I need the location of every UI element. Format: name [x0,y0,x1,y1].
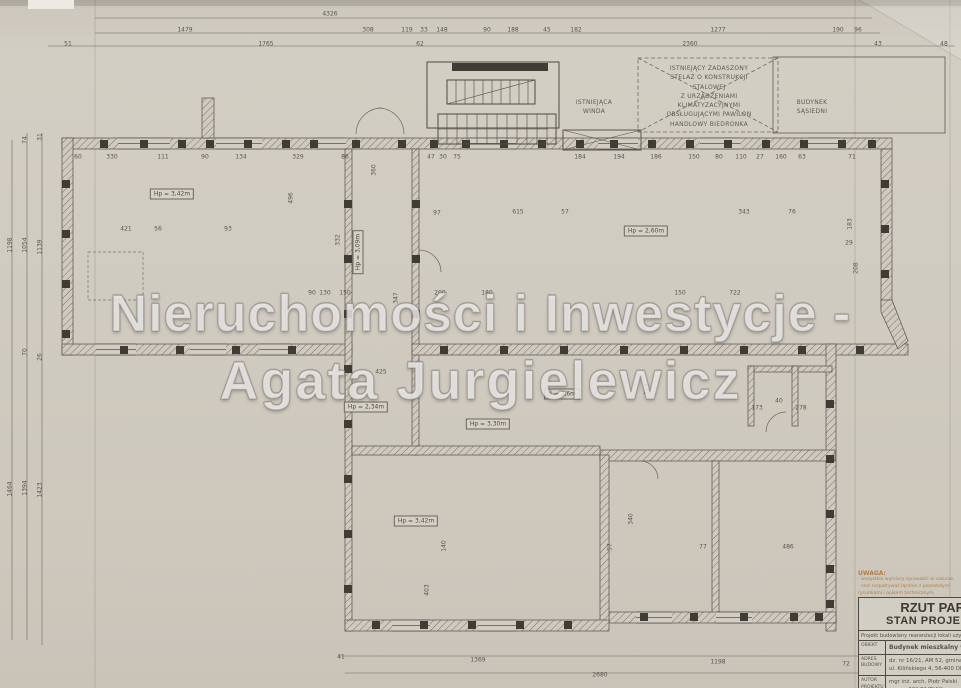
canopy-note: ISTNIEJĄCY ZADASZONY STELAŻ O KONSTRUKCJ… [638,64,780,129]
dimension-text: 1198 [7,237,14,252]
dimension-text: 76 [788,209,796,216]
dimension-text: 74 [22,136,29,144]
uwaga-body: - wszystkie wymiary sprawdzić w naturze,… [858,577,958,598]
dimension-text: 110 [735,154,746,161]
dimension-text: 111 [157,154,168,161]
title-block-row-value: dz. nr 16/21, AM 52, gmina ul. Kilińskie… [886,655,961,675]
room-height-label: Hp = 3,09m [353,230,364,274]
dimension-text: 51 [64,41,72,48]
watermark-line1: Nieruchomości i Inwestycje - [0,284,961,344]
dimension-text: 329 [292,154,303,161]
dimension-text: 2680 [592,672,607,679]
dimension-text: 75 [453,154,461,161]
dimension-text: 148 [436,27,447,34]
title-block-row: AUTOR PROJEKTUmgr inż. arch. Piotr Palsk… [859,676,961,688]
dimension-text: 184 [574,154,585,161]
dimension-text: 308 [362,27,373,34]
scanned-floor-plan-page: 4326147930811933148901884518212771909651… [0,0,961,688]
dimension-text: 90 [201,154,209,161]
external-staircase [427,62,559,144]
dimension-text: 134 [235,154,246,161]
drawing-title: RZUT PARTE [865,600,961,615]
dimension-text: 421 [120,226,131,233]
title-block-row-value: Budynek mieszkalny wielo [886,641,961,654]
dimension-text: 1464 [7,481,14,496]
neighbor-building-outline [773,57,945,133]
dimension-text: 615 [512,209,523,216]
dimension-text: 1479 [177,27,192,34]
dimension-text: 188 [507,27,518,34]
title-block-row-value: mgr inż. arch. Piotr Palski upr. nr 301/… [886,676,961,688]
dimension-text: 486 [782,544,793,551]
dimension-text: 96 [854,27,862,34]
dimension-text: 60 [74,154,82,161]
dimension-text: 48 [940,41,948,48]
dimension-text: 80 [715,154,723,161]
dimension-text: 90 [483,27,491,34]
dimension-text: 330 [106,154,117,161]
dimension-text: 150 [688,154,699,161]
dimension-text: 183 [847,218,854,229]
dimension-text: 1765 [258,41,273,48]
dimension-text: 86 [341,154,349,161]
dimension-text: 62 [416,41,424,48]
dimension-text: 33 [420,27,428,34]
title-block-rows: OBIEKTBudynek mieszkalny wieloADRES BUDO… [859,641,961,688]
dimension-text: 360 [371,164,378,175]
dimension-text: 45 [543,27,551,34]
dimension-text: 119 [401,27,412,34]
dimension-text: 72 [842,661,850,668]
dimension-text: 43 [874,41,882,48]
uwaga-note: UWAGA: - wszystkie wymiary sprawdzić w n… [858,570,958,598]
dimension-text: 57 [561,209,569,216]
title-block-row: OBIEKTBudynek mieszkalny wielo [859,641,961,655]
dimension-text: 186 [650,154,661,161]
dimension-text: 56 [154,226,162,233]
top-left-structure [202,98,214,138]
dimension-text: 160 [775,154,786,161]
dimension-text: 194 [613,154,624,161]
dimension-text: 1394 [22,480,29,495]
dimension-text: 57 [607,543,614,551]
title-block-row: ADRES BUDOWYdz. nr 16/21, AM 52, gmina u… [859,655,961,676]
dimension-text: 2360 [682,41,697,48]
dimension-text: 71 [848,154,856,161]
watermark: Nieruchomości i Inwestycje - Agata Jurgi… [0,284,961,412]
dimension-text: 93 [224,226,232,233]
dimension-text: 140 [441,540,448,551]
dimension-text: 496 [288,192,295,203]
dimension-text: 1369 [470,657,485,664]
title-block: RZUT PARTE STAN PROJEKTOW Projekt budowl… [858,597,961,688]
dimension-text: 340 [628,513,635,524]
title-block-row-label: ADRES BUDOWY [859,655,886,675]
project-description: Projekt budowlany rearanżacji lokali uży… [859,631,961,641]
title-block-row-label: OBIEKT [859,641,886,654]
dimension-text: 4326 [322,11,337,18]
drawing-state: STAN PROJEKTOW [865,615,961,627]
dimension-text: 332 [335,234,342,245]
dimension-text: 27 [756,154,764,161]
dimension-text: 47 [427,154,435,161]
dimension-text: 182 [570,27,581,34]
dimension-text: 29 [845,240,853,247]
dimension-text: 1277 [710,27,725,34]
dimension-text: 97 [433,210,441,217]
dimension-text: 77 [699,544,707,551]
dimension-text: 343 [738,209,749,216]
uwaga-heading: UWAGA: [858,570,958,577]
dimension-text: 208 [853,262,860,273]
dimension-text: 190 [832,27,843,34]
dimension-text: 403 [424,584,431,595]
dimension-text: 63 [798,154,806,161]
dimension-text: 1423 [37,482,44,497]
dimension-text: 41 [337,654,345,661]
title-block-header: RZUT PARTE STAN PROJEKTOW [859,598,961,631]
room-height-label: Hp = 2,60m [624,226,668,237]
neighbor-building-label: BUDYNEK SĄSIEDNI [762,98,862,117]
dimension-text: 30 [439,154,447,161]
dimension-text: 1139 [37,239,44,254]
dimension-text: 1054 [22,237,29,252]
room-height-label: Hp = 3,30m [466,419,510,430]
title-block-row-label: AUTOR PROJEKTU [859,676,886,688]
room-height-label: Hp = 3,42m [150,189,194,200]
room-height-label: Hp = 3,42m [394,516,438,527]
existing-elevator-label: ISTNIEJĄCA WINDA [562,98,626,117]
watermark-line2: Agata Jurgielewicz [0,350,961,412]
dimension-text: 1198 [710,659,725,666]
dimension-text: 31 [37,133,44,141]
